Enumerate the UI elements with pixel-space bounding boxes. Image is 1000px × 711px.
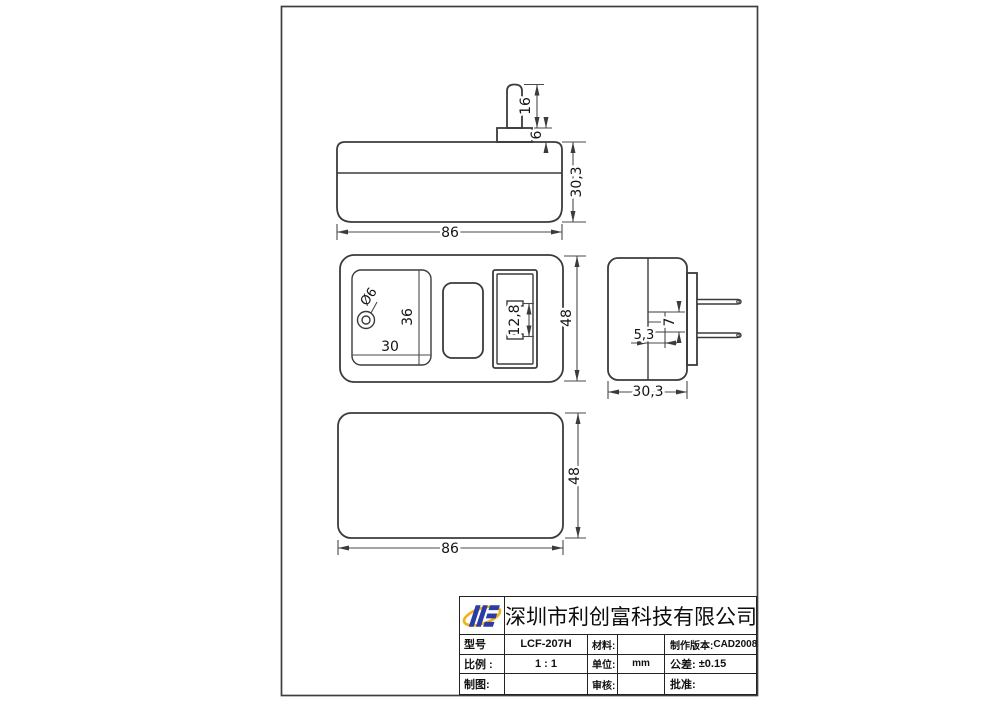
title-block-header: 深圳市利创富科技有限公司 [460, 597, 756, 635]
tolerance-label: 公差: [670, 656, 696, 672]
dim-pin-length: 16 [518, 97, 534, 115]
plug-prong-top [697, 300, 741, 305]
dim-panel-height: 36 [400, 308, 416, 326]
dim-back-width: 86 [441, 541, 459, 557]
dim-back-height: 48 [567, 467, 583, 485]
scale-value: 1 : 1 [505, 655, 588, 675]
company-logo [460, 597, 505, 634]
dim-notch-width: 5,3 [634, 328, 655, 343]
scale-label: 比例 : [460, 655, 505, 675]
dim-panel-width: 30 [381, 339, 399, 355]
material-label: 材料: [588, 635, 618, 655]
check-value [618, 674, 665, 694]
dim-body-width-top: 86 [441, 225, 459, 241]
model-label: 型号 [460, 635, 505, 655]
view-side-elevation: 16 6 30,3 86 [337, 85, 586, 242]
title-block-table: 型号 LCF-207H 材料: 制作版本:CAD2008 比例 : 1 : 1 … [460, 635, 756, 694]
version-label: 制作版本: [670, 637, 713, 652]
dim-jack-diameter: Ø6 [358, 285, 381, 309]
company-name: 深圳市利创富科技有限公司 [505, 597, 757, 634]
approve-label: 批准: [665, 674, 757, 694]
dim-front-height: 48 [559, 309, 575, 327]
drawing-sheet: 16 6 30,3 86 36 30 Ø6 [0, 0, 1000, 711]
tolerance-cell: 公差: ±0.15 [665, 655, 757, 675]
check-label: 审核: [588, 674, 618, 694]
dim-side-width: 30,3 [632, 384, 663, 400]
material-value [618, 635, 665, 655]
title-block: 深圳市利创富科技有限公司 型号 LCF-207H 材料: 制作版本:CAD200… [459, 596, 757, 695]
dc-jack-inner [362, 316, 370, 324]
drawn-value [505, 674, 588, 694]
dim-notch-height: 7 [662, 318, 678, 327]
unit-value: mm [618, 655, 665, 675]
view-right-side: 7 5,3 30,3 [608, 258, 741, 400]
version-cell: 制作版本:CAD2008 [665, 635, 757, 655]
view-back-face: 48 86 [338, 413, 586, 557]
dim-slot-spacing: 12,8 [507, 304, 523, 335]
company-logo-icon [461, 599, 503, 633]
view-front-face: 36 30 Ø6 12,8 48 [340, 255, 586, 382]
model-value: LCF-207H [505, 635, 588, 655]
logo-monogram [469, 605, 500, 626]
dim-pin-base-height: 6 [529, 130, 545, 139]
plug-prong-bottom [697, 333, 741, 338]
tolerance-value: ±0.15 [699, 658, 726, 670]
unit-label: 单位: [588, 655, 618, 675]
drawn-label: 制图: [460, 674, 505, 694]
dim-body-thickness: 30,3 [569, 166, 585, 197]
dc-jack-outer [358, 312, 375, 329]
version-value: CAD2008 [713, 639, 757, 650]
